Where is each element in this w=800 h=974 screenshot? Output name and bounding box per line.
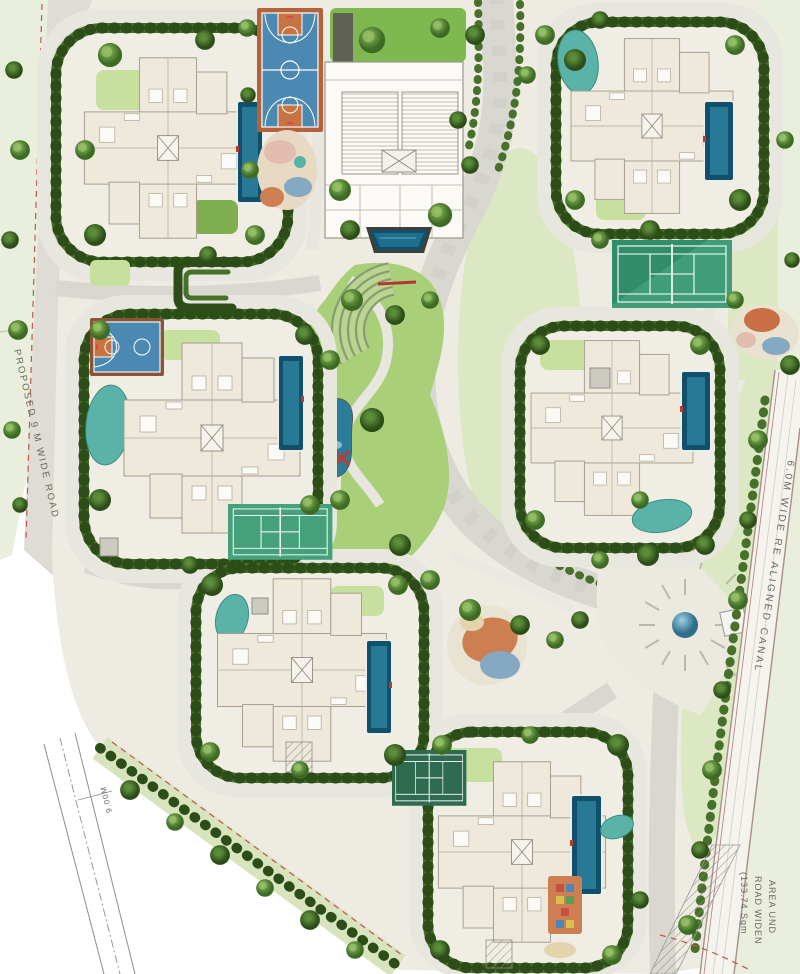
tree-icon xyxy=(602,945,622,965)
tree-icon xyxy=(739,511,757,529)
cluster-mid-right xyxy=(520,326,720,548)
tree-icon xyxy=(240,87,255,102)
tree-icon xyxy=(75,140,95,160)
play-shape-blue xyxy=(480,651,520,679)
play-shape-orange xyxy=(260,187,284,207)
masterplan-drawing: PROPOSED 9 M WIDE ROAD 6.0M WIDE RE ALIG… xyxy=(0,0,800,974)
tree-icon xyxy=(238,19,256,37)
tree-icon xyxy=(728,590,748,610)
tree-icon xyxy=(166,813,184,831)
tree-icon xyxy=(640,220,660,240)
tree-icon xyxy=(300,495,320,515)
tree-icon xyxy=(300,910,320,930)
tree-icon xyxy=(631,891,649,909)
tree-icon xyxy=(346,941,364,959)
tree-icon xyxy=(546,631,564,649)
reflecting-pool xyxy=(366,227,432,253)
tree-icon xyxy=(565,190,585,210)
tree-icon xyxy=(295,325,315,345)
tree-icon xyxy=(726,291,744,309)
tree-icon xyxy=(388,575,408,595)
tree-icon xyxy=(120,780,140,800)
tree-icon xyxy=(341,289,363,311)
tree-icon xyxy=(691,841,709,859)
play-shape-pink xyxy=(264,140,296,164)
tree-icon xyxy=(389,534,411,556)
tree-icon xyxy=(780,355,800,375)
tree-icon xyxy=(340,220,360,240)
tree-icon xyxy=(90,320,110,340)
label-area-line1: AREA UND xyxy=(767,880,777,934)
play-shape-pink xyxy=(736,332,756,348)
pavilion xyxy=(590,368,610,388)
tree-icon xyxy=(678,915,698,935)
tree-icon xyxy=(199,246,217,264)
tree-icon xyxy=(607,734,629,756)
play-shape-teal xyxy=(294,156,306,168)
tree-icon xyxy=(776,131,794,149)
tree-icon xyxy=(449,111,467,129)
tree-icon xyxy=(10,140,30,160)
tree-icon xyxy=(5,61,23,79)
tree-icon xyxy=(564,49,586,71)
tree-icon xyxy=(241,161,259,179)
tree-icon xyxy=(245,225,265,245)
canopy-x xyxy=(382,150,416,172)
basketball-court xyxy=(257,8,323,132)
tree-icon xyxy=(521,726,539,744)
tree-icon xyxy=(291,761,309,779)
tree-icon xyxy=(329,179,351,201)
sand-pit xyxy=(544,942,576,958)
tree-icon xyxy=(181,556,199,574)
pavilion xyxy=(252,598,268,614)
tree-icon xyxy=(195,30,215,50)
tree-icon xyxy=(359,27,385,53)
tree-icon xyxy=(428,203,452,227)
tennis-court-top-right xyxy=(612,240,732,308)
play-shape-blue xyxy=(284,177,312,197)
pavilion xyxy=(100,538,118,556)
lap-pool xyxy=(367,641,392,733)
tree-icon xyxy=(631,491,649,509)
tree-icon xyxy=(510,615,530,635)
tree-icon xyxy=(518,66,536,84)
tree-icon xyxy=(1,231,19,249)
tree-icon xyxy=(320,350,340,370)
tree-icon xyxy=(535,25,555,45)
tree-icon xyxy=(84,224,106,246)
tree-icon xyxy=(12,497,27,512)
tree-icon xyxy=(702,760,722,780)
tree-icon xyxy=(690,335,710,355)
tree-icon xyxy=(430,18,450,38)
garden-patch xyxy=(192,200,238,234)
site-plan: PROPOSED 9 M WIDE ROAD 6.0M WIDE RE ALIG… xyxy=(0,0,800,974)
tree-icon xyxy=(637,544,659,566)
tennis-court-mid xyxy=(228,504,332,560)
tree-icon xyxy=(384,744,406,766)
tree-icon xyxy=(210,845,230,865)
tree-icon xyxy=(525,510,545,530)
play-shape-orange xyxy=(744,308,780,332)
label-area-line2: ROAD WIDEN xyxy=(753,876,763,945)
tree-icon xyxy=(748,430,768,450)
tree-icon xyxy=(330,490,350,510)
stage-marker xyxy=(378,282,416,284)
lap-pool xyxy=(680,372,710,450)
lap-pool xyxy=(703,102,733,180)
tree-icon xyxy=(591,11,609,29)
tree-icon xyxy=(725,35,745,55)
tree-icon xyxy=(461,156,479,174)
cluster-bottom xyxy=(392,732,637,968)
tree-icon xyxy=(465,25,485,45)
tree-icon xyxy=(385,305,405,325)
tree-icon xyxy=(729,189,751,211)
tree-icon xyxy=(430,940,450,960)
lap-pool xyxy=(279,356,304,450)
road-to-bottom xyxy=(662,655,668,974)
hopscotch-play-area xyxy=(548,876,582,934)
tree-icon xyxy=(421,291,439,309)
tree-icon xyxy=(432,735,452,755)
tree-icon xyxy=(530,335,550,355)
sphere-fountain xyxy=(672,612,698,638)
tree-icon xyxy=(420,570,440,590)
tree-icon xyxy=(591,551,609,569)
tree-icon xyxy=(8,320,28,340)
tree-icon xyxy=(360,408,384,432)
tree-icon xyxy=(256,879,274,897)
tree-icon xyxy=(459,599,481,621)
label-area-line3: (133.74 Sqm xyxy=(739,872,749,935)
tree-icon xyxy=(201,574,223,596)
tree-icon xyxy=(784,252,799,267)
tree-icon xyxy=(695,535,715,555)
tree-icon xyxy=(98,43,122,67)
trellis-paving xyxy=(486,940,512,968)
tree-icon xyxy=(571,611,589,629)
play-shape-blue xyxy=(762,337,790,355)
tree-icon xyxy=(3,421,21,439)
tree-icon xyxy=(713,681,731,699)
cluster-mid-left xyxy=(82,314,332,564)
playground-top-left xyxy=(257,130,317,210)
tree-icon xyxy=(591,231,609,249)
tree-icon xyxy=(200,742,220,762)
tree-icon xyxy=(89,489,111,511)
garden-patch xyxy=(90,260,130,286)
